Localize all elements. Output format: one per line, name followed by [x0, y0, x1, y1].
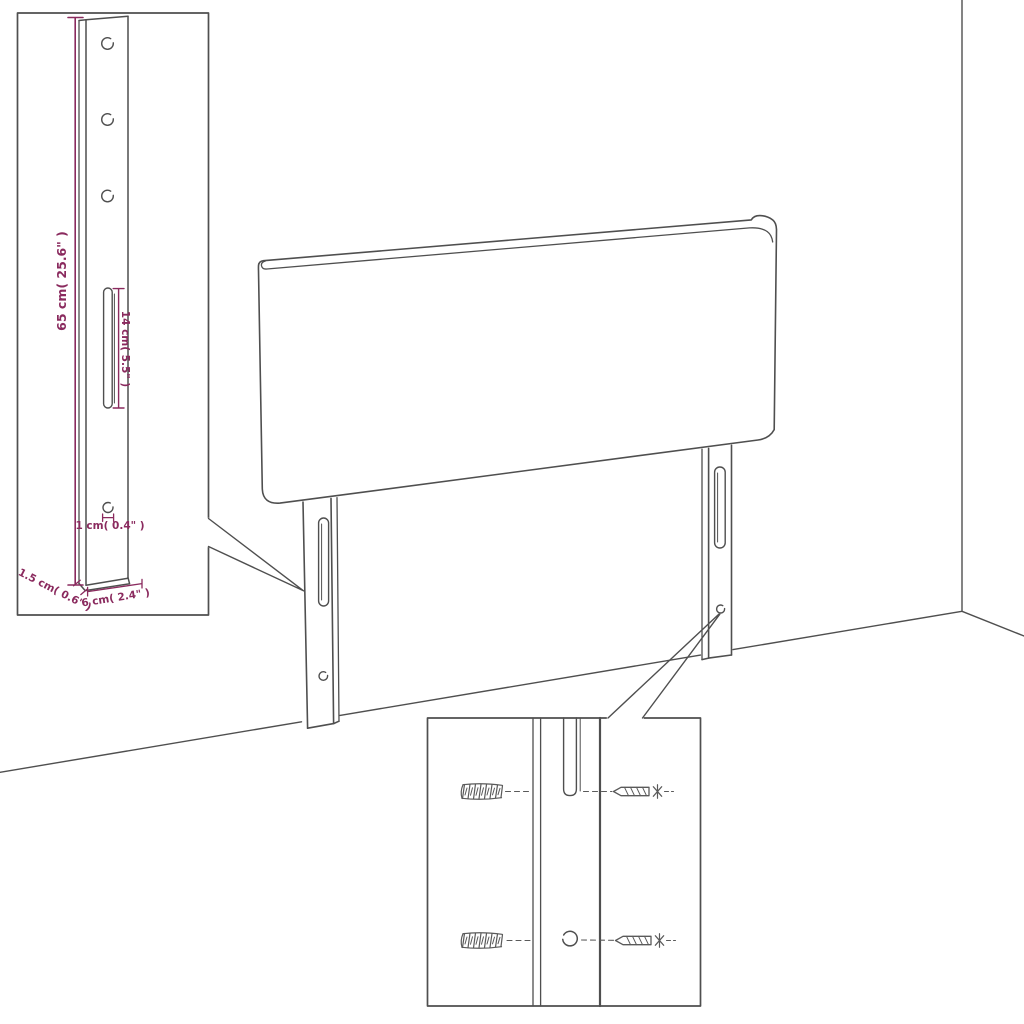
dim-height-label: 65 cm( 25.6" ): [54, 231, 69, 331]
dimension-labels: 65 cm( 25.6" ) 14 cm( 5.5" ) 1 cm( 0.4" …: [16, 231, 151, 614]
floor-line-left: [0, 611, 962, 772]
assembly-diagram-svg: 65 cm( 25.6" ) 14 cm( 5.5" ) 1 cm( 0.4" …: [0, 0, 1024, 1024]
headboard-panel-outline: [258, 216, 776, 504]
dim-slot-label: 14 cm( 5.5" ): [119, 311, 131, 387]
right-leg: [702, 445, 732, 659]
bracket-slot: [104, 288, 113, 408]
mount-hole-detail: [560, 929, 580, 949]
right-leg-slot: [715, 467, 726, 548]
bracket-small-hole: [103, 503, 113, 513]
screw-upper-icon: [614, 785, 662, 799]
bracket-top-edge: [79, 16, 128, 20]
bracket-hole-2: [102, 114, 114, 126]
wall-plug-lower-icon: [461, 933, 502, 949]
bracket-drawing: [79, 16, 130, 590]
left-leg-slot: [319, 518, 329, 606]
right-leg-bottom-edge: [702, 655, 732, 660]
left-leg: [303, 498, 339, 729]
left-leg-front-edge: [331, 498, 334, 723]
callout-wedge-right: [608, 614, 720, 718]
leg-cross-section: [533, 718, 600, 1006]
left-leg-hole: [319, 672, 328, 681]
dimension-annotations: 65 cm( 25.6" ) 14 cm( 5.5" ) 1 cm( 0.4" …: [16, 18, 151, 614]
headboard: [258, 216, 776, 504]
left-leg-side-edge: [337, 498, 339, 722]
bracket-hole-1: [102, 38, 114, 50]
floor-line-right: [962, 611, 1024, 636]
hardware-inset: [428, 614, 720, 1006]
left-leg-left-edge: [303, 502, 308, 728]
hardware-upper-row: [461, 784, 673, 800]
wall-plug-upper-icon: [461, 784, 502, 800]
dim-height-line: [68, 18, 83, 586]
line-art: [0, 0, 1024, 1006]
dim-hole-label: 1 cm( 0.4" ): [75, 520, 144, 532]
screw-lower-icon: [616, 934, 664, 948]
bracket-hole-3: [102, 190, 114, 202]
mount-slot-detail: [564, 718, 577, 796]
right-leg-hole: [717, 605, 725, 613]
callout-wedge-left: [209, 519, 304, 591]
product-dimension-diagram: 65 cm( 25.6" ) 14 cm( 5.5" ) 1 cm( 0.4" …: [0, 0, 1024, 1024]
